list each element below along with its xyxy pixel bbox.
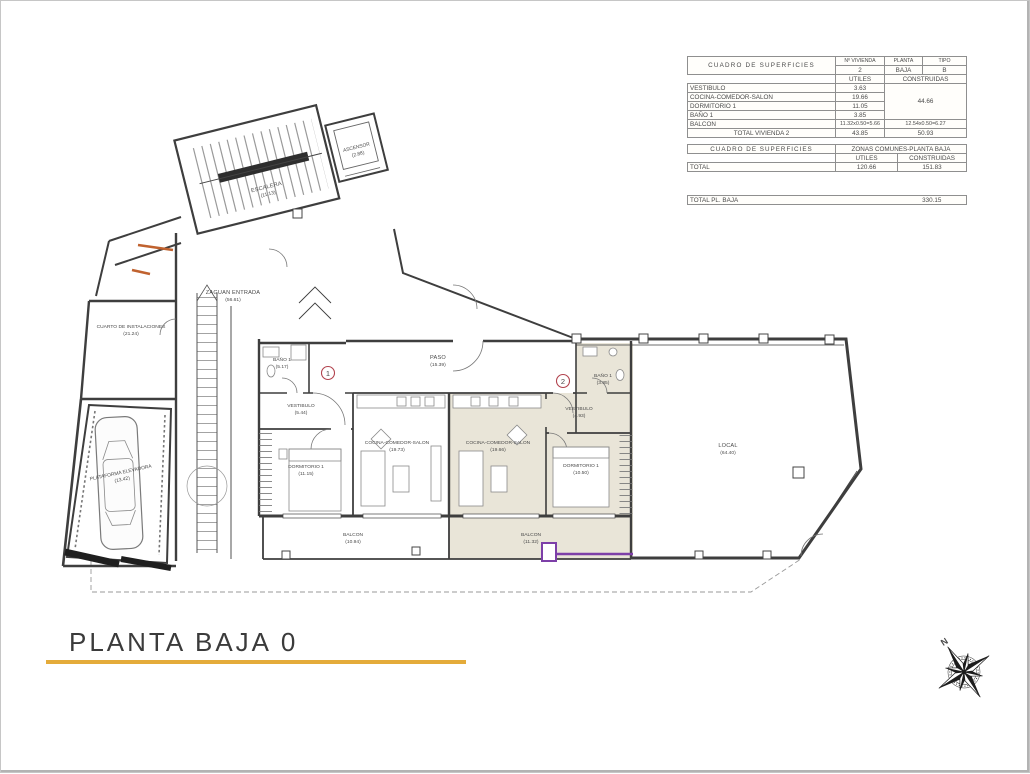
- unit2-marker: 2: [561, 377, 565, 386]
- total-planta-value: 330.15: [898, 196, 967, 205]
- surface-table-comunes: CUADRO DE SUPERFICIES ZONAS COMUNES-PLAN…: [687, 144, 966, 172]
- orange-highlight-segments: [132, 245, 173, 274]
- compass-rose-icon: N: [917, 621, 1006, 713]
- ramp: [187, 285, 227, 553]
- room-area-cocina-v1: (19.73): [389, 447, 405, 453]
- table-row: CUADRO DE SUPERFICIES ZONAS COMUNES-PLAN…: [688, 145, 967, 154]
- col-planta-label: PLANTA: [885, 57, 923, 66]
- room-area-cocina-v2: (19.66): [490, 447, 506, 453]
- room-area-vestibulo-v2: (4.93): [573, 413, 586, 419]
- table-row: BALCON 11.32x0.50=5.66 12.54x0.50=6.27: [688, 120, 967, 129]
- room-label-cocina-v1: COCINA-COMEDOR-SALON: [365, 440, 430, 446]
- row-label: COCINA-COMEDOR-SALON: [688, 93, 836, 102]
- tipo-value: B: [923, 66, 967, 75]
- row-utiles: 3.85: [836, 111, 885, 120]
- room-area-zaguan: (56.61): [225, 297, 241, 303]
- room-label-dormitorio-v1: DORMITORIO 1: [288, 464, 324, 470]
- total-vivienda-construidas: 50.93: [885, 129, 967, 138]
- room-label-bano1-v1: BAÑO 1: [273, 356, 291, 363]
- row-utiles: 19.66: [836, 93, 885, 102]
- planta-value: BAJA: [885, 66, 923, 75]
- table-row: VESTIBULO 3.63 44.66: [688, 84, 967, 93]
- balcon-construidas: 12.54x0.50=6.27: [885, 120, 967, 129]
- total-planta-label: TOTAL PL. BAJA: [688, 196, 836, 205]
- table-row: UTILES CONSTRUIDAS: [688, 154, 967, 163]
- vivienda-number: 2: [836, 66, 885, 75]
- room-area-paso: (15.39): [430, 362, 446, 368]
- table-row: TOTAL PL. BAJA 330.15: [688, 196, 967, 205]
- unit1-marker: 1: [326, 369, 330, 378]
- balcon-label: BALCON: [688, 120, 836, 129]
- total-comunes-label: TOTAL: [688, 163, 836, 172]
- room-label-local: LOCAL: [718, 443, 737, 449]
- room-label-dormitorio-v2: DORMITORIO 1: [563, 463, 599, 469]
- stair-wing: ESCALERA (11.13) ASCENSOR (2.88): [174, 92, 391, 234]
- room-area-dormitorio-v2: (10.50): [573, 470, 589, 476]
- room-area-bano1-v2: (3.85): [597, 380, 610, 386]
- table-row: TOTAL VIVIENDA 2 43.85 50.93: [688, 129, 967, 138]
- sheet-background: ESCALERA (11.13) ASCENSOR (2.88): [0, 0, 1030, 773]
- total-planta-strip: TOTAL PL. BAJA 330.15: [687, 195, 966, 205]
- table-row: TOTAL 120.66 151.83: [688, 163, 967, 172]
- row-label: DORMITORIO 1: [688, 102, 836, 111]
- room-area-cuarto-instalaciones: (21.24): [123, 331, 139, 337]
- room-label-cocina-v2: COCINA-COMEDOR-SALON: [466, 440, 531, 446]
- site-boundary-dashed: [91, 559, 801, 592]
- room-label-paso: PASO: [430, 355, 446, 361]
- bed: [553, 447, 609, 507]
- col-construidas: CONSTRUIDAS: [898, 154, 967, 163]
- table-title: CUADRO DE SUPERFICIES: [688, 145, 836, 154]
- surface-table-vivienda: CUADRO DE SUPERFICIES Nº VIVIENDA PLANTA…: [687, 56, 966, 138]
- row-utiles: 3.63: [836, 84, 885, 93]
- col-tipo-label: TIPO: [923, 57, 967, 66]
- room-label-balcon-v1: BALCON: [343, 532, 364, 538]
- bed: [279, 449, 341, 511]
- row-label: BAÑO 1: [688, 111, 836, 120]
- room-area-vestibulo-v1: (5.44): [295, 410, 308, 416]
- room-label-bano1-v2: BAÑO 1: [594, 372, 612, 379]
- room-area-balcon-v1: (10.94): [345, 539, 361, 545]
- room-area-local: (64.40): [720, 450, 736, 456]
- total-comunes-utiles: 120.66: [836, 163, 898, 172]
- room-area-dormitorio-v1: (11.15): [298, 471, 314, 477]
- room-label-vestibulo-v2: VESTIBULO: [565, 406, 593, 412]
- room-labels: ZAGUAN ENTRADA (56.61) CUARTO DE INSTALA…: [89, 290, 737, 545]
- room-area-bano1-v1: (5.17): [276, 364, 289, 370]
- col-construidas: CONSTRUIDAS: [885, 75, 967, 84]
- room-area-balcon-v2: (11.32): [523, 539, 539, 545]
- row-utiles: 11.05: [836, 102, 885, 111]
- col-vivienda-label: Nº VIVIENDA: [836, 57, 885, 66]
- room-label-cuarto-instalaciones: CUARTO DE INSTALACIONES: [97, 324, 166, 330]
- total-comunes-construidas: 151.83: [898, 163, 967, 172]
- col-utiles: UTILES: [836, 154, 898, 163]
- table-row: UTILES CONSTRUIDAS: [688, 75, 967, 84]
- table-subtitle: ZONAS COMUNES-PLANTA BAJA: [836, 145, 967, 154]
- table-row: CUADRO DE SUPERFICIES Nº VIVIENDA PLANTA…: [688, 57, 967, 66]
- room-label-zaguan: ZAGUAN ENTRADA: [206, 290, 260, 296]
- compass-north-label: N: [939, 636, 950, 648]
- balcon-utiles: 11.32x0.50=5.66: [836, 120, 885, 129]
- room-label-vestibulo-v1: VESTIBULO: [287, 403, 315, 409]
- col-utiles: UTILES: [836, 75, 885, 84]
- car-lift-platform: [65, 405, 171, 568]
- table-title: CUADRO DE SUPERFICIES: [688, 57, 836, 75]
- title-underline: [46, 660, 466, 664]
- total-vivienda-label: TOTAL VIVIENDA 2: [688, 129, 836, 138]
- total-vivienda-utiles: 43.85: [836, 129, 885, 138]
- sheet-title: PLANTA BAJA 0: [69, 627, 298, 658]
- room-label-balcon-v2: BALCON: [521, 532, 542, 538]
- construidas-group-value: 44.66: [885, 84, 967, 120]
- row-label: VESTIBULO: [688, 84, 836, 93]
- unit-markers: 1 2: [322, 367, 570, 388]
